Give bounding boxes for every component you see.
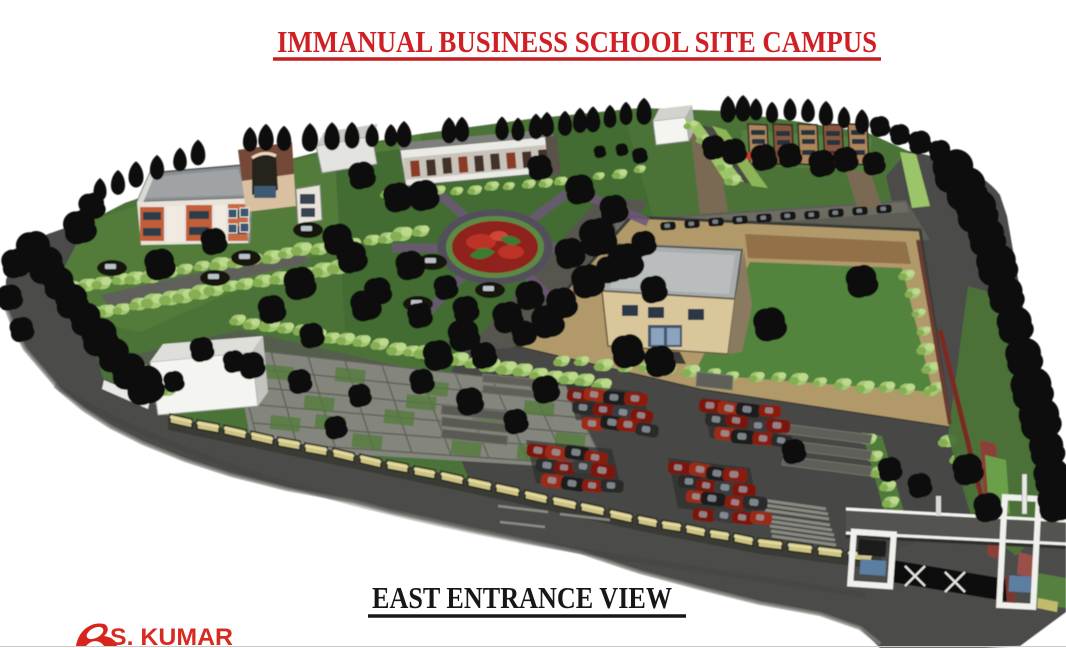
- svg-text:EAST ENTRANCE VIEW: EAST ENTRANCE VIEW: [372, 580, 672, 615]
- svg-text:S. KUMAR: S. KUMAR: [110, 624, 233, 648]
- svg-text:IMMANUAL BUSINESS SCHOOL SITE: IMMANUAL BUSINESS SCHOOL SITE CAMPUS: [277, 24, 877, 59]
